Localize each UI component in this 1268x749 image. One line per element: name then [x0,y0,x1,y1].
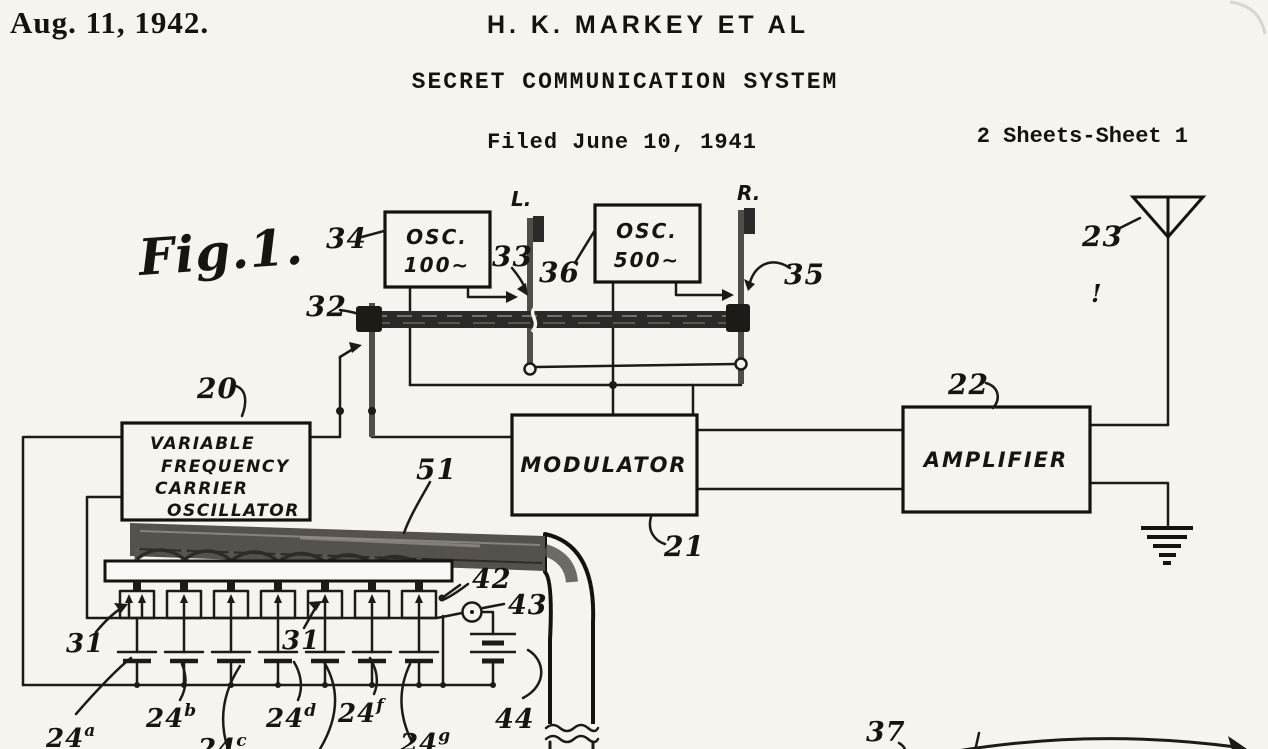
osc-100-line1: OSC. [406,225,468,249]
ref-33: 33 [492,240,533,273]
wire-vfo-wiper [310,357,340,437]
cap-label-24b: 24b [145,701,197,734]
wire-ring43-battery [481,612,493,634]
battery-44 [470,634,516,661]
antenna-symbol [1133,197,1203,237]
ref-35: 35 [784,258,825,291]
ref-34: 34 [326,222,367,255]
leader-43 [483,604,504,608]
cap-label-24c: 24c [197,731,248,749]
wire-amp-ground [1090,483,1168,526]
rodR-terminal [736,359,747,370]
patent-date: Aug. 11, 1942. [10,5,209,40]
filing-date: Filed June 10, 1941 [487,130,757,155]
record-arc-37 [893,733,1247,749]
wire-osc500-arrow [676,282,722,295]
ref-31-right: 31 [282,626,320,656]
leader-44 [523,650,541,698]
patent-sheet: Aug. 11, 1942. H. K. MARKEY ET AL SECRET… [0,0,1268,749]
ref-21: 21 [663,530,705,563]
vfo-line1: VARIABLE [150,434,255,454]
cap-label-24a: 24a [45,721,96,749]
wiper-arrow-shaft [340,349,353,357]
ref-20: 20 [196,372,238,405]
wire-left-inner-loop [87,497,122,618]
ref-32: 32 [306,290,347,323]
rod-right-label: R. [737,181,760,205]
leader-21 [650,517,665,544]
modulator-label: MODULATOR [520,453,687,477]
vfo-line2: FREQUENCY [161,457,290,477]
vfo-line3: CARRIER [155,479,248,499]
wire-bus-to-modulator [410,385,693,415]
switch-contacts [120,591,436,618]
sheet-number: 2 Sheets-Sheet 1 [977,124,1188,149]
ref-36: 36 [539,256,580,289]
commutator-bar [362,311,748,328]
cap-label-24f: 24f [337,696,386,729]
ref-31-left: 31 [66,629,104,659]
rod-left-label: L. [511,187,531,211]
leader-51 [404,482,430,533]
key-bar [105,561,452,581]
ref-44: 44 [495,704,535,735]
armature-L [533,216,544,242]
vfo-line4: OSCILLATOR [167,501,300,521]
wire-rodL-rodR [536,364,735,367]
rodL-terminal [525,364,536,375]
leader-24d [294,662,301,700]
osc-500-line1: OSC. [616,219,678,243]
armature-R [744,208,755,234]
ref-23: 23 [1081,220,1123,253]
patent-title: SECRET COMMUNICATION SYSTEM [412,69,839,95]
inventor-name: H. K. MARKEY ET AL [487,11,809,39]
ref-51: 51 [416,453,457,486]
cap-label-24d: 24d [265,701,317,734]
osc-100-line2: 100∼ [404,253,471,277]
scan-corner-decor [1230,2,1265,34]
ref-43: 43 [508,590,548,621]
patent-drawing: Aug. 11, 1942. H. K. MARKEY ET AL SECRET… [0,0,1268,749]
tube-break [543,724,600,749]
osc-500-line2: 500∼ [614,248,681,272]
ref-22: 22 [947,368,989,401]
stray-exclamation: ! [1091,279,1103,308]
ref-42: 42 [472,564,512,595]
ref-37: 37 [866,717,906,748]
ground-symbol [1141,528,1193,563]
leader-24e-cut [320,662,335,749]
cap-label-24g: 24g [399,726,451,749]
figure-label: Fig.1. [135,217,306,288]
amplifier-label: AMPLIFIER [922,448,1068,472]
